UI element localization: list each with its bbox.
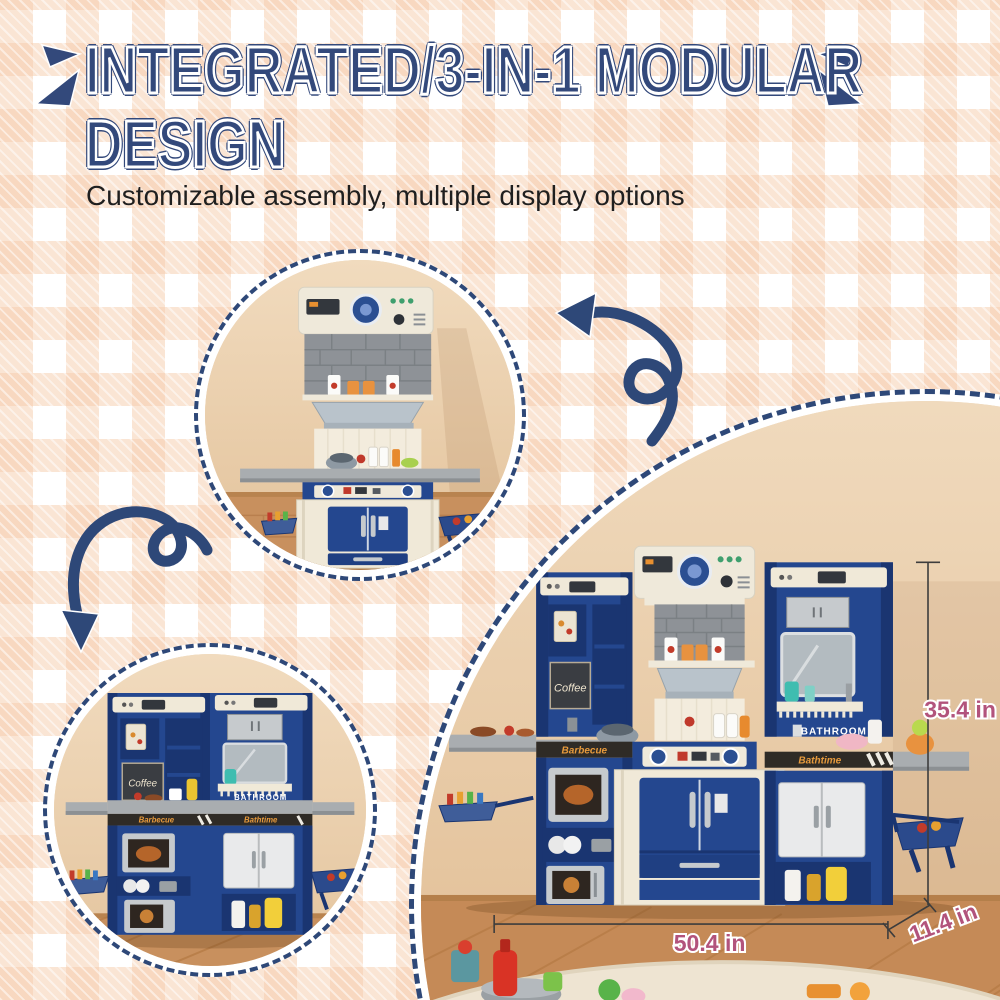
bathtime-banner: Bathtime [798, 756, 841, 767]
single-module-photo-area [205, 260, 515, 570]
bathtime-banner: Bathtime [244, 816, 278, 825]
right-base-cabinet [765, 771, 893, 905]
single-module-scene [205, 260, 515, 570]
product-infographic: INTEGRATED/3-IN-1 MODULAR DESIGN Customi… [0, 0, 1000, 1000]
page-title-line2: DESIGN [85, 108, 862, 182]
page-subtitle: Customizable assembly, multiple display … [86, 180, 685, 212]
barbecue-banner: Barbecue [562, 746, 608, 757]
bathroom-tower: BATHROOM [210, 693, 312, 802]
left-tower-coffee: Coffee [536, 572, 632, 736]
oven-base [108, 826, 210, 935]
inset-single-module-photo [194, 249, 526, 581]
curly-arrow-down-icon [55, 492, 235, 670]
page-title: INTEGRATED/3-IN-1 MODULAR DESIGN [85, 34, 862, 182]
dual-module-scene: Coffee [54, 654, 366, 966]
dual-module-photo-area: Coffee [54, 654, 366, 966]
width-dimension-label: 50.4 in [674, 930, 746, 956]
coffee-tower: Coffee [108, 693, 210, 802]
cabinet-base [210, 826, 312, 935]
coffee-sign: Coffee [554, 683, 586, 695]
counter: Barbecue Bathtime [66, 800, 355, 825]
right-tower-bathroom: BATHROOM [765, 562, 893, 737]
inset-dual-module-photo: Coffee [43, 643, 377, 977]
center-base-fridge [614, 770, 784, 905]
height-dimension-label: 35.4 in [924, 697, 996, 723]
curly-arrow-up-icon [552, 283, 752, 448]
page-title-line1: INTEGRATED/3-IN-1 MODULAR [85, 34, 862, 108]
coffee-sign: Coffee [128, 779, 157, 790]
stove-panel [632, 742, 756, 772]
barbecue-banner: Barbecue [139, 816, 175, 825]
headline-accent-left-icon [26, 42, 84, 108]
